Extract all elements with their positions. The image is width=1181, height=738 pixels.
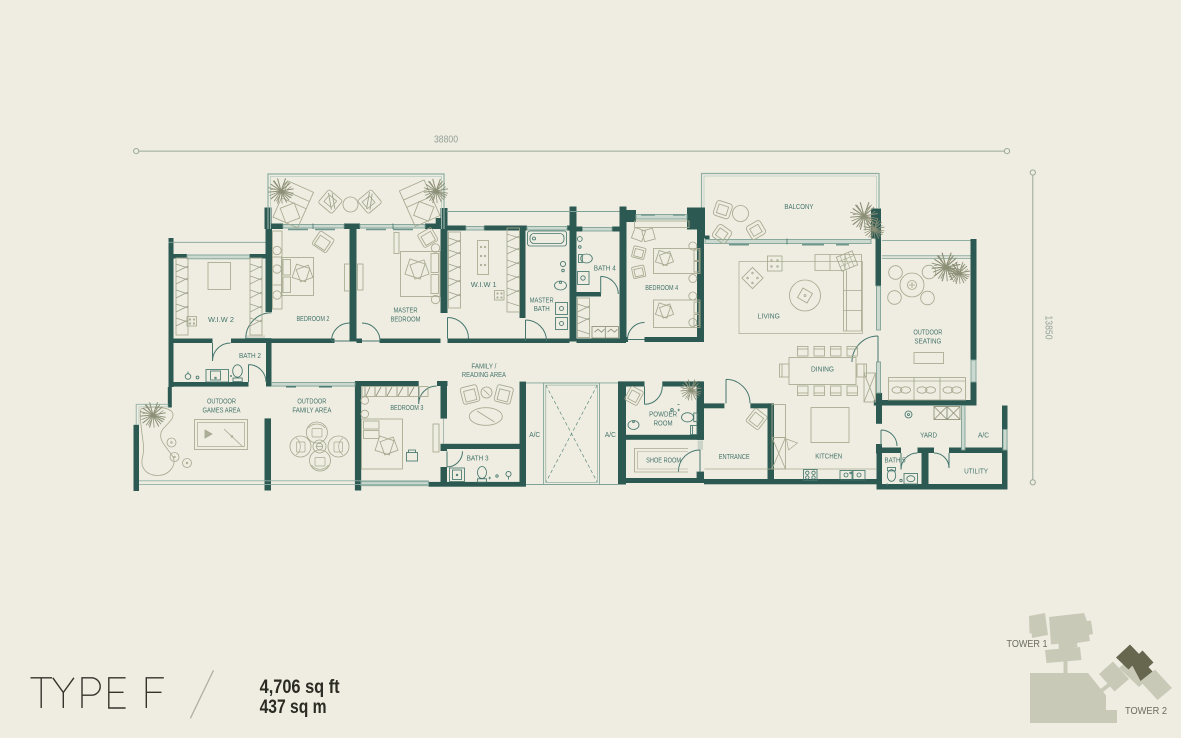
svg-text:4,706 sq ft: 4,706 sq ft (260, 676, 340, 698)
svg-text:UTILITY: UTILITY (964, 466, 988, 475)
svg-text:LIVING: LIVING (758, 311, 780, 320)
svg-text:TOWER 2: TOWER 2 (1125, 706, 1167, 717)
svg-text:BATH 5: BATH 5 (885, 455, 906, 464)
svg-text:BATH 3: BATH 3 (467, 454, 489, 463)
svg-text:BEDROOM 4: BEDROOM 4 (645, 283, 678, 292)
svg-text:BEDROOM 2: BEDROOM 2 (297, 314, 330, 323)
svg-text:A/C: A/C (605, 430, 617, 439)
svg-text:DINING: DINING (811, 364, 834, 373)
svg-text:OUTDOOR: OUTDOOR (913, 327, 942, 336)
svg-text:BATH 2: BATH 2 (239, 351, 261, 360)
svg-text:W.I.W 1: W.I.W 1 (471, 280, 497, 289)
svg-text:OUTDOOR: OUTDOOR (297, 397, 326, 406)
svg-text:SEATING: SEATING (914, 336, 941, 345)
svg-text:38800: 38800 (434, 134, 458, 146)
svg-text:MASTER: MASTER (394, 306, 418, 315)
svg-text:SHOE ROOM: SHOE ROOM (646, 456, 681, 465)
svg-text:13850: 13850 (1043, 316, 1055, 340)
svg-text:FAMILY /: FAMILY / (471, 361, 497, 370)
svg-text:BALCONY: BALCONY (784, 202, 813, 211)
svg-text:GAMES AREA: GAMES AREA (203, 406, 241, 415)
svg-text:BATH 4: BATH 4 (594, 264, 616, 273)
svg-text:READING AREA: READING AREA (462, 370, 506, 379)
svg-text:BEDROOM 3: BEDROOM 3 (390, 403, 423, 412)
svg-text:KITCHEN: KITCHEN (815, 451, 842, 460)
svg-text:W.I.W 2: W.I.W 2 (208, 315, 234, 324)
svg-text:BEDROOM: BEDROOM (391, 315, 421, 324)
svg-text:YARD: YARD (920, 431, 937, 440)
svg-text:ENTRANCE: ENTRANCE (719, 452, 750, 461)
svg-text:A/C: A/C (978, 431, 990, 440)
svg-text:ROOM: ROOM (654, 418, 673, 427)
svg-text:BATH: BATH (534, 304, 550, 313)
svg-text:FAMILY AREA: FAMILY AREA (292, 406, 331, 415)
svg-text:A/C: A/C (529, 430, 541, 439)
svg-text:437 sq m: 437 sq m (260, 696, 327, 718)
svg-text:TOWER 1: TOWER 1 (1007, 639, 1048, 650)
svg-text:OUTDOOR: OUTDOOR (207, 397, 236, 406)
